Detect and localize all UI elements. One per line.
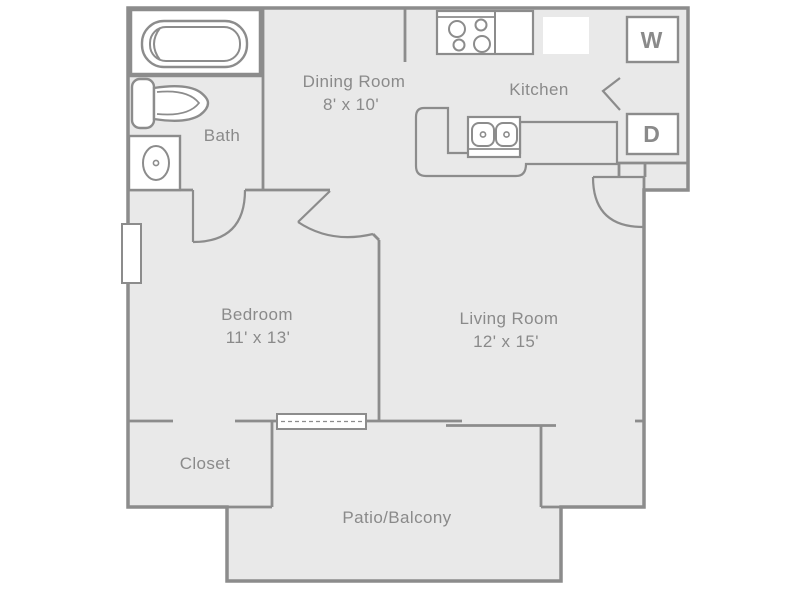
bedroom-window-icon [122,224,141,283]
label-living-room: Living Room [460,309,559,328]
floor-plan-canvas: Dining Room 8' x 10' Kitchen Bath Bedroo… [0,0,800,600]
label-bedroom-dims: 11' x 13' [226,328,291,347]
stove-icon [437,11,533,54]
label-bedroom: Bedroom [221,305,293,324]
label-dining-dims: 8' x 10' [323,95,379,114]
refrigerator-icon [543,17,589,54]
label-dining-room: Dining Room [303,72,406,91]
label-dryer: D [643,121,661,147]
label-closet: Closet [180,454,231,473]
toilet-tank [132,79,154,128]
kitchen-sink-icon [468,117,520,157]
label-kitchen: Kitchen [509,80,569,99]
label-living-dims: 12' x 15' [473,332,539,351]
kitchen-sink-basin-right [496,123,517,146]
apartment-outline [128,8,688,581]
label-patio-balcony: Patio/Balcony [342,508,451,527]
bath-sink-basin [143,146,169,180]
kitchen-sink-basin-left [472,123,494,146]
label-bath: Bath [204,126,241,145]
label-washer: W [641,27,664,53]
floor-plan: Dining Room 8' x 10' Kitchen Bath Bedroo… [0,0,800,600]
bath-sink-icon [129,136,180,190]
